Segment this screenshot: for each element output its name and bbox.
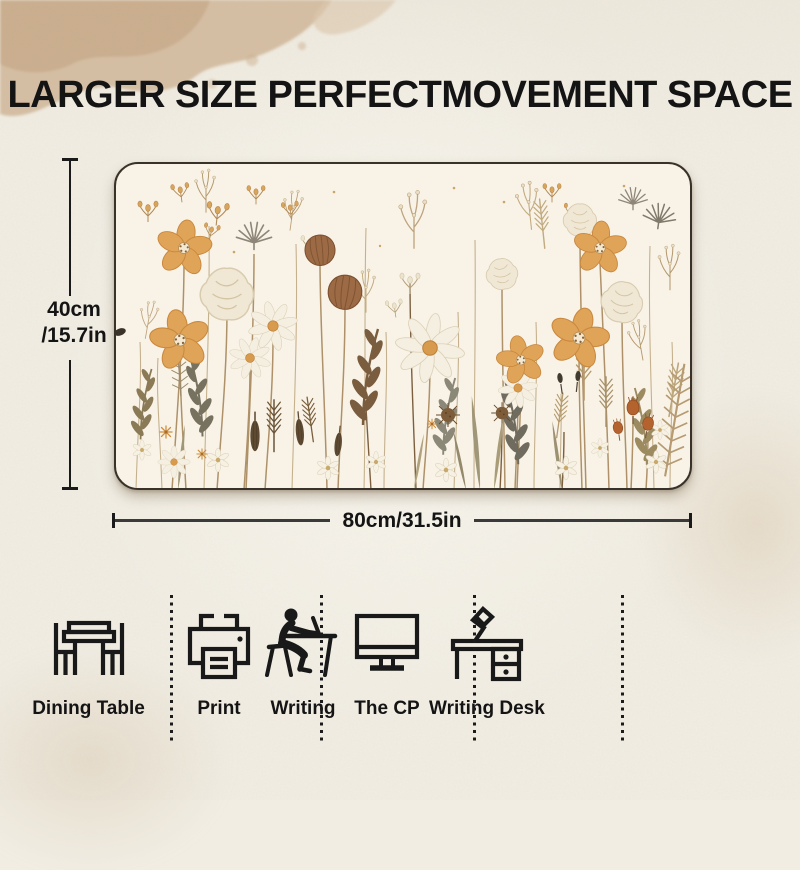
feature-item-the-cp: The CP bbox=[345, 598, 429, 740]
computer-monitor-icon bbox=[345, 598, 429, 692]
desk-mat-product-image bbox=[114, 162, 692, 490]
height-dimension-label: 40cm /15.7in bbox=[26, 297, 122, 350]
feature-label: Writing bbox=[270, 698, 335, 720]
dining-table-icon bbox=[47, 598, 131, 692]
width-dimension-label: 80cm/31.5in bbox=[330, 509, 473, 533]
feature-label: The CP bbox=[354, 698, 419, 720]
feature-item-dining-table: Dining Table bbox=[0, 598, 177, 740]
feature-label: Writing Desk bbox=[429, 698, 545, 720]
dimension-cap bbox=[62, 487, 78, 490]
height-value-in: /15.7in bbox=[41, 324, 106, 347]
dotted-divider bbox=[621, 595, 624, 743]
feature-item-writing-desk: Writing Desk bbox=[429, 598, 545, 740]
feature-label: Print bbox=[197, 698, 240, 720]
dotted-divider bbox=[320, 595, 323, 743]
dimension-line-segment bbox=[474, 519, 690, 521]
feature-item-writing: Writing bbox=[261, 598, 345, 740]
feature-label: Dining Table bbox=[32, 698, 145, 720]
writing-person-icon bbox=[261, 598, 345, 692]
dimension-line-segment bbox=[69, 360, 71, 490]
writing-desk-icon bbox=[445, 598, 529, 692]
dimension-cap bbox=[689, 513, 692, 528]
width-dimension-line: 80cm/31.5in bbox=[112, 512, 692, 529]
dimension-line-segment bbox=[69, 158, 71, 296]
features-row: Dining Table Print bbox=[0, 598, 800, 740]
product-infographic-page: { "title": "LARGER SIZE PERFECTMOVEMENT … bbox=[0, 0, 800, 800]
dimension-line-segment bbox=[115, 519, 331, 521]
height-value-cm: 40cm bbox=[47, 298, 101, 321]
printer-icon bbox=[177, 598, 261, 692]
page-title: LARGER SIZE PERFECTMOVEMENT SPACE bbox=[0, 74, 800, 117]
feature-item-print: Print bbox=[177, 598, 261, 740]
dotted-divider bbox=[473, 595, 476, 743]
wildflower-artwork bbox=[114, 162, 692, 490]
dotted-divider bbox=[170, 595, 173, 743]
